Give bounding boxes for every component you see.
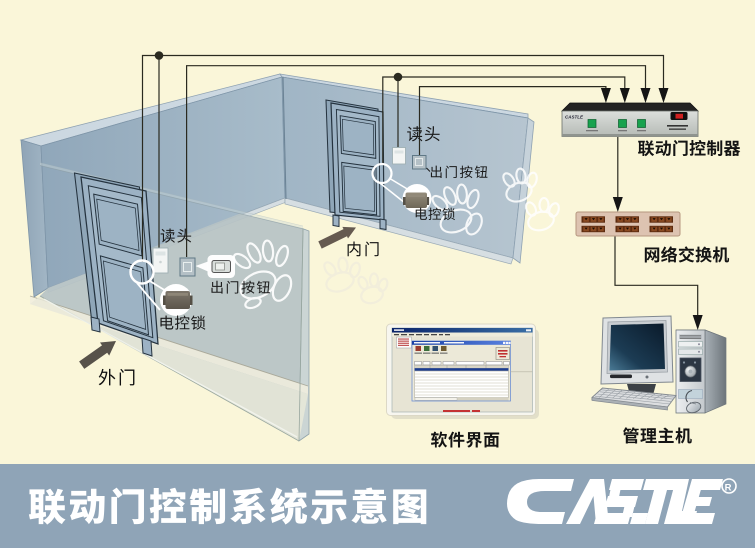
svg-text:CASTLE: CASTLE (565, 115, 584, 120)
svg-text:R: R (725, 483, 732, 494)
